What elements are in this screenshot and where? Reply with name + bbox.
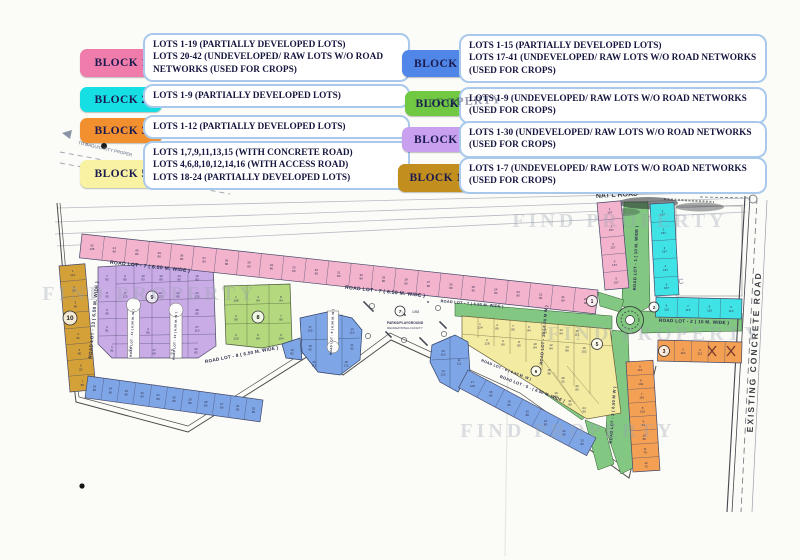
tspan: 93 [141, 278, 145, 282]
tspan: 80 [472, 289, 476, 293]
lot-number: 2580 [252, 406, 256, 414]
tspan: 102 [640, 409, 645, 413]
tspan: 157 [662, 249, 667, 253]
lot-number: 2880 [204, 400, 208, 408]
block-number: 3 [663, 349, 666, 355]
tspan: 92 [561, 380, 565, 384]
tspan: 105 [307, 329, 312, 333]
tspan: 80 [539, 296, 543, 300]
legend-text: LOTS 4,6,8,10,12,14,16 (WITH ACCESS ROAD… [153, 159, 400, 171]
lot-number: 2780 [220, 402, 224, 410]
lot-number: 1980 [507, 400, 511, 408]
lot-number: 2980 [382, 275, 386, 283]
tspan: 120 [233, 337, 238, 341]
lot-number: 1898 [547, 368, 551, 376]
lot-number: 3280 [315, 268, 319, 276]
legend-text: (USED FOR CROPS) [469, 65, 757, 77]
tspan: 80 [204, 403, 208, 407]
watermark: FIND PROPERTY [547, 323, 762, 345]
tspan: 99 [152, 352, 156, 356]
legend-box-block-5: LOTS 1,7,9,11,13,15 (WITH CONCRETE ROAD)… [143, 141, 410, 190]
tspan: 80 [501, 343, 505, 347]
tspan: 80 [202, 259, 206, 263]
tspan: 79 [643, 451, 647, 455]
lot-number: 2480 [494, 287, 498, 295]
tspan: 110 [441, 353, 446, 357]
tspan: 104 [278, 337, 283, 341]
tspan: 84 [533, 346, 537, 350]
lot-number: 4180 [113, 246, 117, 254]
tspan: 113 [312, 364, 317, 368]
tspan: 80 [172, 399, 176, 403]
lot-number: 2490 [582, 406, 586, 414]
tspan: 80 [517, 294, 521, 298]
legend-text: LOTS 1-9 (PARTIALLY DEVELOPED LOTS) [153, 90, 400, 102]
lot-number: 3080 [359, 273, 363, 281]
legend-box-block-2: LOTS 1-9 (PARTIALLY DEVELOPED LOTS) [143, 84, 410, 108]
tspan: 90 [582, 410, 586, 414]
lot-number: 1179 [643, 447, 647, 455]
tspan: 81 [110, 349, 114, 353]
lot-number: 3380 [125, 389, 129, 397]
stipple-dot [426, 344, 428, 346]
tspan: 132 [440, 373, 445, 377]
tspan: 84 [549, 347, 553, 351]
lot-number: 2180 [561, 295, 565, 303]
tspan: 80 [427, 284, 431, 288]
tspan: 110 [195, 329, 200, 333]
tspan: 85 [146, 331, 150, 335]
tspan: 80 [561, 298, 565, 302]
tspan: 111 [457, 362, 462, 366]
tspan: 81 [105, 329, 109, 333]
watermark: FIND PROPERTY [42, 283, 257, 305]
tspan: 80 [270, 267, 274, 271]
block-number: 10 [66, 315, 74, 322]
tspan: 81 [76, 336, 80, 340]
tspan: 80 [220, 406, 224, 410]
legend-box-block-7: LOTS 1-15 (PARTIALLY DEVELOPED LOTS) LOT… [459, 34, 767, 83]
tspan: 80 [156, 397, 160, 401]
tspan: 80 [195, 312, 199, 316]
tspan: 80 [575, 388, 579, 392]
tspan: 112 [638, 368, 643, 372]
tspan: 157 [663, 268, 668, 272]
tspan: 110 [639, 396, 644, 400]
tspan: 80 [113, 250, 117, 254]
watermark: FIND PROPERTY [460, 420, 675, 442]
lot-number: 1799 [152, 348, 156, 356]
lot-number: 1682 [290, 348, 294, 356]
lot-number: 2182 [350, 343, 354, 351]
tspan: 80 [159, 278, 163, 282]
tspan: 102 [581, 350, 586, 354]
tspan: 80 [93, 388, 97, 392]
tspan: 84 [279, 299, 283, 303]
legend-text: LOTS 1-19 (PARTIALLY DEVELOPED LOTS) [153, 39, 400, 51]
tspan: 112 [697, 352, 702, 356]
legend-text: (USED FOR CROPS) [469, 105, 757, 117]
road-label: ROAD LOT - 8 ( 6.50 M. WIDE ) [205, 345, 280, 364]
tspan: 80 [568, 403, 572, 407]
lot-number: 2980 [188, 398, 192, 406]
tspan: 80 [135, 252, 139, 256]
lot-number: 2880 [195, 308, 199, 316]
lot-number: 1275 [644, 461, 648, 469]
tspan: 84 [256, 337, 260, 341]
legend-text: LOTS 1-30 (UNDEVELOPED/ RAW LOTS W/O ROA… [469, 127, 757, 139]
tspan: 121 [70, 273, 75, 277]
tspan: 102 [638, 382, 643, 386]
tspan: 80 [382, 279, 386, 283]
tspan: 80 [252, 410, 256, 414]
lot-number: 2880 [404, 278, 408, 286]
lot-number: 1683 [195, 274, 199, 282]
tspan: 83 [194, 351, 198, 355]
lot-number: 2080 [526, 409, 530, 417]
lot-number: 3580 [93, 384, 97, 392]
lot-number: 3080 [172, 395, 176, 403]
lot-number: 3980 [158, 251, 162, 259]
legend-text: (USED FOR CROPS) [469, 175, 757, 187]
tspan: 80 [234, 318, 238, 322]
tspan: 98 [547, 372, 551, 376]
legend-box-block-3: LOTS 1-12 (PARTIALLY DEVELOPED LOTS) [143, 115, 410, 139]
legend-text: LOTS 1,7,9,11,13,15 (WITH CONCRETE ROAD) [153, 147, 400, 159]
direction-arrow-icon [62, 130, 72, 139]
tspan: 80 [236, 408, 240, 412]
lot-number: 1880 [489, 390, 493, 398]
lot-number: 3780 [202, 256, 206, 264]
lot-number: 1084 [533, 342, 537, 350]
legend-text: LOTS 1-9 (UNDEVELOPED/ RAW LOTS W/O ROAD… [469, 93, 757, 105]
lot-number: 2380 [517, 290, 521, 298]
tree-icon [435, 305, 440, 310]
tspan: 75 [644, 464, 648, 468]
tspan: 80 [78, 352, 82, 356]
tspan: 80 [125, 392, 129, 396]
legend-text: LOTS 1-7 (UNDEVELOPED/ RAW LOTS W/O ROAD… [469, 163, 757, 175]
tspan: 124 [477, 326, 482, 330]
tspan: 80 [292, 269, 296, 273]
tspan: 80 [225, 262, 229, 266]
lot-number: 3180 [337, 270, 341, 278]
tspan: 80 [105, 312, 109, 316]
legend-box-block-1: LOTS 1-19 (PARTIALLY DEVELOPED LOTS) LOT… [143, 33, 410, 82]
lot-number: 1480 [565, 345, 569, 353]
park-label-1: PARKS/PLAYGROUND [387, 321, 424, 325]
lot-number: 3380 [292, 266, 296, 274]
stipple-dot [390, 336, 392, 338]
lot-number: 4080 [135, 249, 139, 257]
tspan: 115 [729, 309, 734, 313]
stipple-dot [372, 310, 374, 312]
tspan: 80 [141, 395, 145, 399]
lot-number: 3580 [247, 261, 251, 269]
tspan: 80 [495, 327, 499, 331]
lot-number: 2780 [427, 280, 431, 288]
tspan: 80 [359, 276, 363, 280]
block-number: 1 [591, 299, 594, 305]
lot-number: 3880 [180, 253, 184, 261]
tspan: 95 [308, 348, 312, 352]
block-number: 8 [256, 315, 259, 321]
tspan: 105 [89, 247, 94, 251]
tspan: 80 [489, 394, 493, 398]
tspan: 80 [81, 383, 85, 387]
lot-number: 1093 [141, 274, 145, 282]
lot-number: 2092 [561, 376, 565, 384]
tspan: 83 [105, 278, 109, 282]
tspan: 80 [279, 318, 283, 322]
legend-text: LOTS 20-42 (UNDEVELOPED/ RAW LOTS W/O RO… [153, 51, 400, 63]
tspan: 80 [180, 257, 184, 261]
tspan: 80 [517, 344, 521, 348]
tspan: 80 [449, 286, 453, 290]
lot-number: 2680 [449, 283, 453, 291]
lot-number: 1280 [159, 274, 163, 282]
legend-text: (USED FOR CROPS) [469, 139, 757, 151]
legend-text: LOTS 17-41 (UNDEVELOPED/ RAW LOTS W/O RO… [469, 52, 757, 64]
tspan: 80 [109, 390, 113, 394]
lot-number: 2680 [236, 404, 240, 412]
tspan: 80 [158, 255, 162, 259]
tspan: 115 [686, 308, 691, 312]
stipple-dot [404, 314, 406, 316]
tspan: 82 [79, 367, 83, 371]
tspan: 85 [123, 278, 127, 282]
tspan: 80 [507, 403, 511, 407]
tspan: 83 [195, 278, 199, 282]
lot-number: 2083 [194, 347, 198, 355]
tree-icon [365, 333, 370, 338]
lot-number: 3480 [109, 387, 113, 395]
stipple-dot [427, 301, 429, 303]
tspan: 157 [610, 246, 615, 250]
lot-number: 3280 [141, 391, 145, 399]
legend-box-block-9: LOTS 1-30 (UNDEVELOPED/ RAW LOTS W/O ROA… [459, 121, 767, 158]
legend-text: NETWORKS (USED FOR CROPS) [153, 64, 400, 76]
tspan: 80 [315, 272, 319, 276]
lot-number: 1480 [177, 274, 181, 282]
legend-text: LOTS 1-15 (PARTIALLY DEVELOPED LOTS) [469, 40, 757, 52]
ink-speck [79, 483, 84, 488]
tree-icon [369, 303, 374, 308]
tspan: 80 [404, 281, 408, 285]
lot-number: 3680 [225, 258, 229, 266]
tspan: 110 [681, 351, 686, 355]
tspan: 115 [707, 308, 712, 312]
legend-text: LOTS 18-24 (PARTIALLY DEVELOPED LOTS) [153, 172, 400, 184]
lot-number: 2180 [568, 399, 572, 407]
tree-icon [441, 331, 446, 336]
tspan: 105 [470, 384, 475, 388]
legend-box-block-8: LOTS 1-9 (UNDEVELOPED/ RAW LOTS W/O ROAD… [459, 87, 767, 124]
tspan: 116 [350, 331, 355, 335]
lot-number: 3180 [156, 393, 160, 401]
existing-road-label: EXISTING CONCRETE ROAD [745, 271, 763, 432]
tspan: 132 [343, 364, 348, 368]
tspan: 80 [511, 328, 515, 332]
tspan: 80 [247, 264, 251, 268]
tspan: 115 [664, 307, 669, 311]
tspan: 80 [494, 291, 498, 295]
tspan: 157 [612, 263, 617, 267]
tspan: 80 [188, 401, 192, 405]
tspan: 157 [614, 280, 619, 284]
lot-number: 2580 [472, 285, 476, 293]
watermark: FIND PROPERTY [512, 210, 727, 232]
lot-number: 3480 [270, 263, 274, 271]
tspan: 84 [527, 329, 531, 333]
park-area-value: 1058 [412, 310, 419, 314]
tspan: 80 [526, 413, 530, 417]
legend-text: LOTS 1-12 (PARTIALLY DEVELOPED LOTS) [153, 121, 400, 133]
stipple-dot [445, 327, 447, 329]
lot-number: 2280 [539, 292, 543, 300]
tspan: 80 [337, 274, 341, 278]
tspan: 82 [290, 352, 294, 356]
lot-number: 1895 [308, 344, 312, 352]
park-label-2: RECREATIONAL FACILITY [387, 326, 423, 330]
tspan: 157 [664, 286, 669, 290]
legend-box-block-10: LOTS 1-7 (UNDEVELOPED/ RAW LOTS W/O ROAD… [459, 157, 767, 194]
scanned-subdivision-plan: { "legend": { "left": [ {"chip":"BLOCK 1… [0, 0, 800, 560]
tspan: 82 [350, 347, 354, 351]
tspan: 128 [484, 342, 489, 346]
tspan: 80 [177, 278, 181, 282]
tspan: 80 [580, 442, 584, 446]
lot-number: 2280 [575, 384, 579, 392]
tspan: 80 [565, 349, 569, 353]
